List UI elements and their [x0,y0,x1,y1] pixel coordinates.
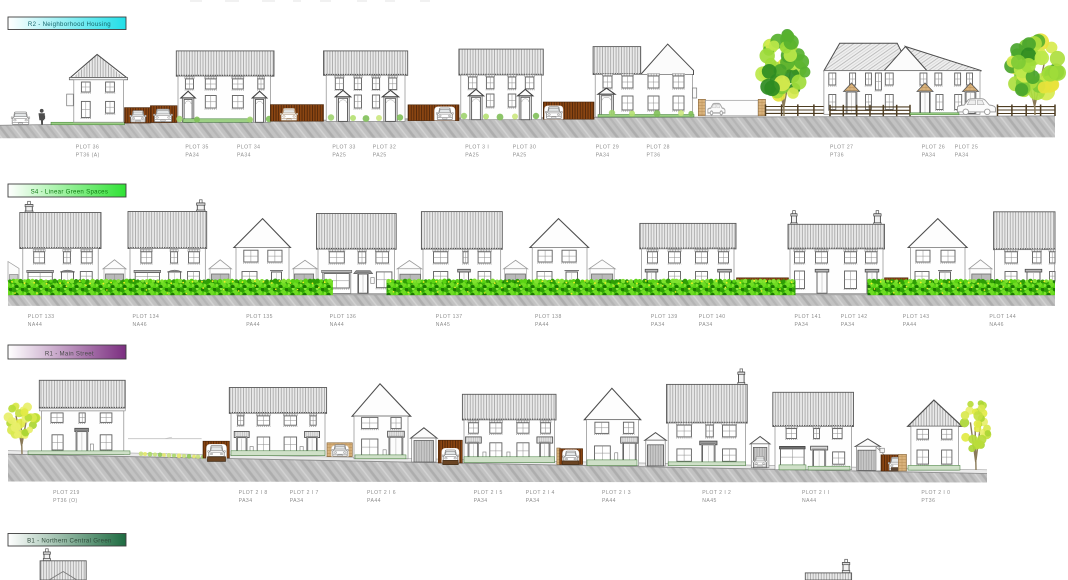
svg-text:PLOT 2 I 4: PLOT 2 I 4 [526,490,555,496]
svg-text:PLOT 137: PLOT 137 [436,314,463,320]
svg-text:PLOT 135: PLOT 135 [246,314,273,320]
svg-text:PT36: PT36 [830,152,844,158]
svg-text:PLOT 2 I 7: PLOT 2 I 7 [290,490,319,496]
svg-text:PA44: PA44 [246,322,260,328]
svg-text:PA34: PA34 [955,152,969,158]
svg-text:PA34: PA34 [922,152,936,158]
svg-text:PA25: PA25 [373,152,387,158]
svg-text:PLOT 140: PLOT 140 [699,314,726,320]
svg-text:PLOT 144: PLOT 144 [989,314,1016,320]
svg-text:NA45: NA45 [436,322,451,328]
svg-text:PA25: PA25 [332,152,346,158]
svg-text:PT36: PT36 [921,498,935,504]
svg-text:PT36 (A): PT36 (A) [76,152,100,158]
svg-text:PA34: PA34 [841,322,855,328]
svg-text:PLOT 2 I 3: PLOT 2 I 3 [602,490,631,496]
svg-text:PLOT 2 I I: PLOT 2 I I [802,490,830,496]
svg-text:NA46: NA46 [133,322,148,328]
svg-text:PA34: PA34 [651,322,665,328]
svg-text:PA25: PA25 [465,152,479,158]
svg-text:PA44: PA44 [903,322,917,328]
svg-text:PLOT 219: PLOT 219 [53,490,80,496]
svg-text:NA45: NA45 [702,498,717,504]
svg-text:R1 - Main Street: R1 - Main Street [45,351,94,358]
svg-text:PLOT 28: PLOT 28 [647,145,670,151]
svg-text:PT36 (O): PT36 (O) [53,498,78,504]
svg-text:NA44: NA44 [802,498,817,504]
svg-text:PLOT 2 I 0: PLOT 2 I 0 [921,490,950,496]
svg-text:PA34: PA34 [596,152,610,158]
svg-text:PLOT 133: PLOT 133 [28,314,55,320]
svg-text:PA34: PA34 [290,498,304,504]
svg-text:PLOT 25: PLOT 25 [955,145,978,151]
svg-text:PA44: PA44 [602,498,616,504]
svg-text:PLOT 2 I 8: PLOT 2 I 8 [239,490,268,496]
svg-text:PLOT 29: PLOT 29 [596,145,619,151]
svg-text:PLOT 27: PLOT 27 [830,145,853,151]
svg-text:PLOT 136: PLOT 136 [330,314,357,320]
svg-text:PLOT 143: PLOT 143 [903,314,930,320]
svg-text:PA44: PA44 [367,498,381,504]
svg-text:PLOT 141: PLOT 141 [795,314,822,320]
svg-text:PLOT 36: PLOT 36 [76,145,99,151]
svg-text:PA44: PA44 [535,322,549,328]
svg-text:NA46: NA46 [989,322,1004,328]
svg-text:PA34: PA34 [185,152,199,158]
svg-text:PLOT 2 I 6: PLOT 2 I 6 [367,490,396,496]
svg-text:PLOT 3 I: PLOT 3 I [465,145,489,151]
svg-text:PLOT 2 I 2: PLOT 2 I 2 [702,490,731,496]
svg-text:PA34: PA34 [474,498,488,504]
svg-text:S4 - Linear Green Spaces: S4 - Linear Green Spaces [31,189,109,196]
svg-text:PA34: PA34 [239,498,253,504]
svg-text:PLOT 139: PLOT 139 [651,314,678,320]
svg-text:PLOT 138: PLOT 138 [535,314,562,320]
svg-text:PA34: PA34 [795,322,809,328]
svg-text:PA34: PA34 [526,498,540,504]
svg-text:NA44: NA44 [330,322,345,328]
svg-text:PLOT 35: PLOT 35 [185,145,208,151]
svg-text:PLOT 33: PLOT 33 [332,145,355,151]
svg-text:NA44: NA44 [28,322,43,328]
svg-text:PLOT 34: PLOT 34 [237,145,260,151]
svg-text:B1 - Northern Central Green: B1 - Northern Central Green [27,538,112,545]
svg-text:PA25: PA25 [513,152,527,158]
svg-text:PT36: PT36 [647,152,661,158]
svg-text:PLOT 30: PLOT 30 [513,145,536,151]
svg-text:R2 - Neighborhood Housing: R2 - Neighborhood Housing [28,21,111,28]
svg-text:PLOT 2 I 5: PLOT 2 I 5 [474,490,503,496]
svg-text:PA34: PA34 [237,152,251,158]
svg-text:PLOT 142: PLOT 142 [841,314,868,320]
svg-text:PLOT 32: PLOT 32 [373,145,396,151]
svg-text:PLOT 134: PLOT 134 [133,314,160,320]
svg-text:PLOT 26: PLOT 26 [922,145,945,151]
svg-text:PA34: PA34 [699,322,713,328]
